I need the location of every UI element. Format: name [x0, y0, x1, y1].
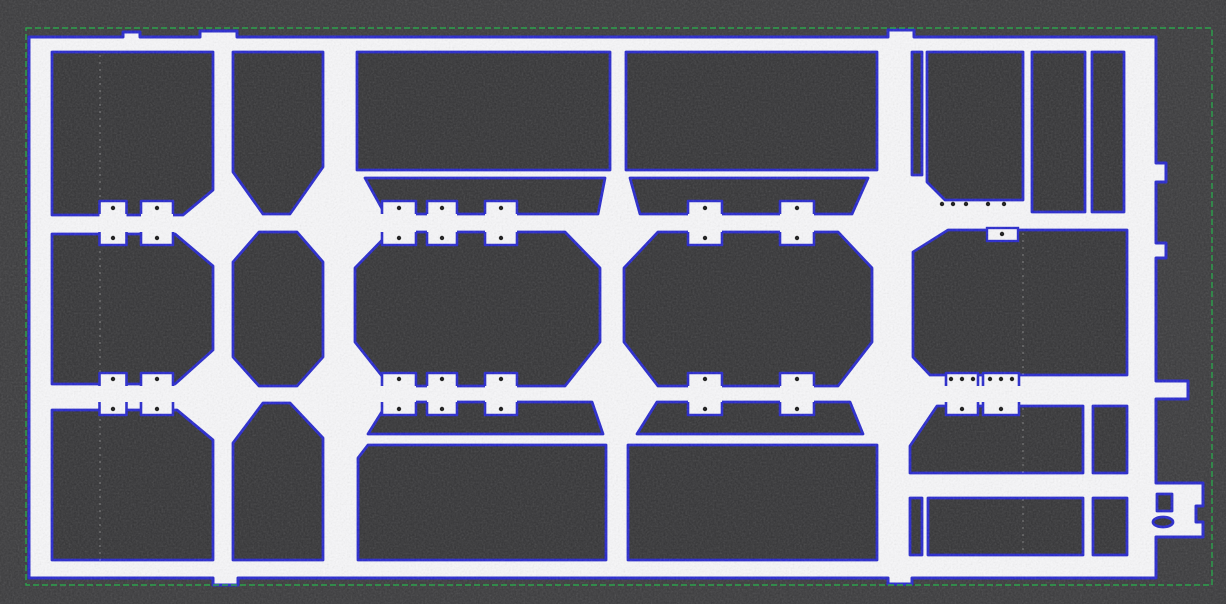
machine-vision-capture	[0, 0, 1226, 604]
leadframe-scan-image	[0, 0, 1226, 604]
film-grain-overlay	[0, 0, 1226, 604]
